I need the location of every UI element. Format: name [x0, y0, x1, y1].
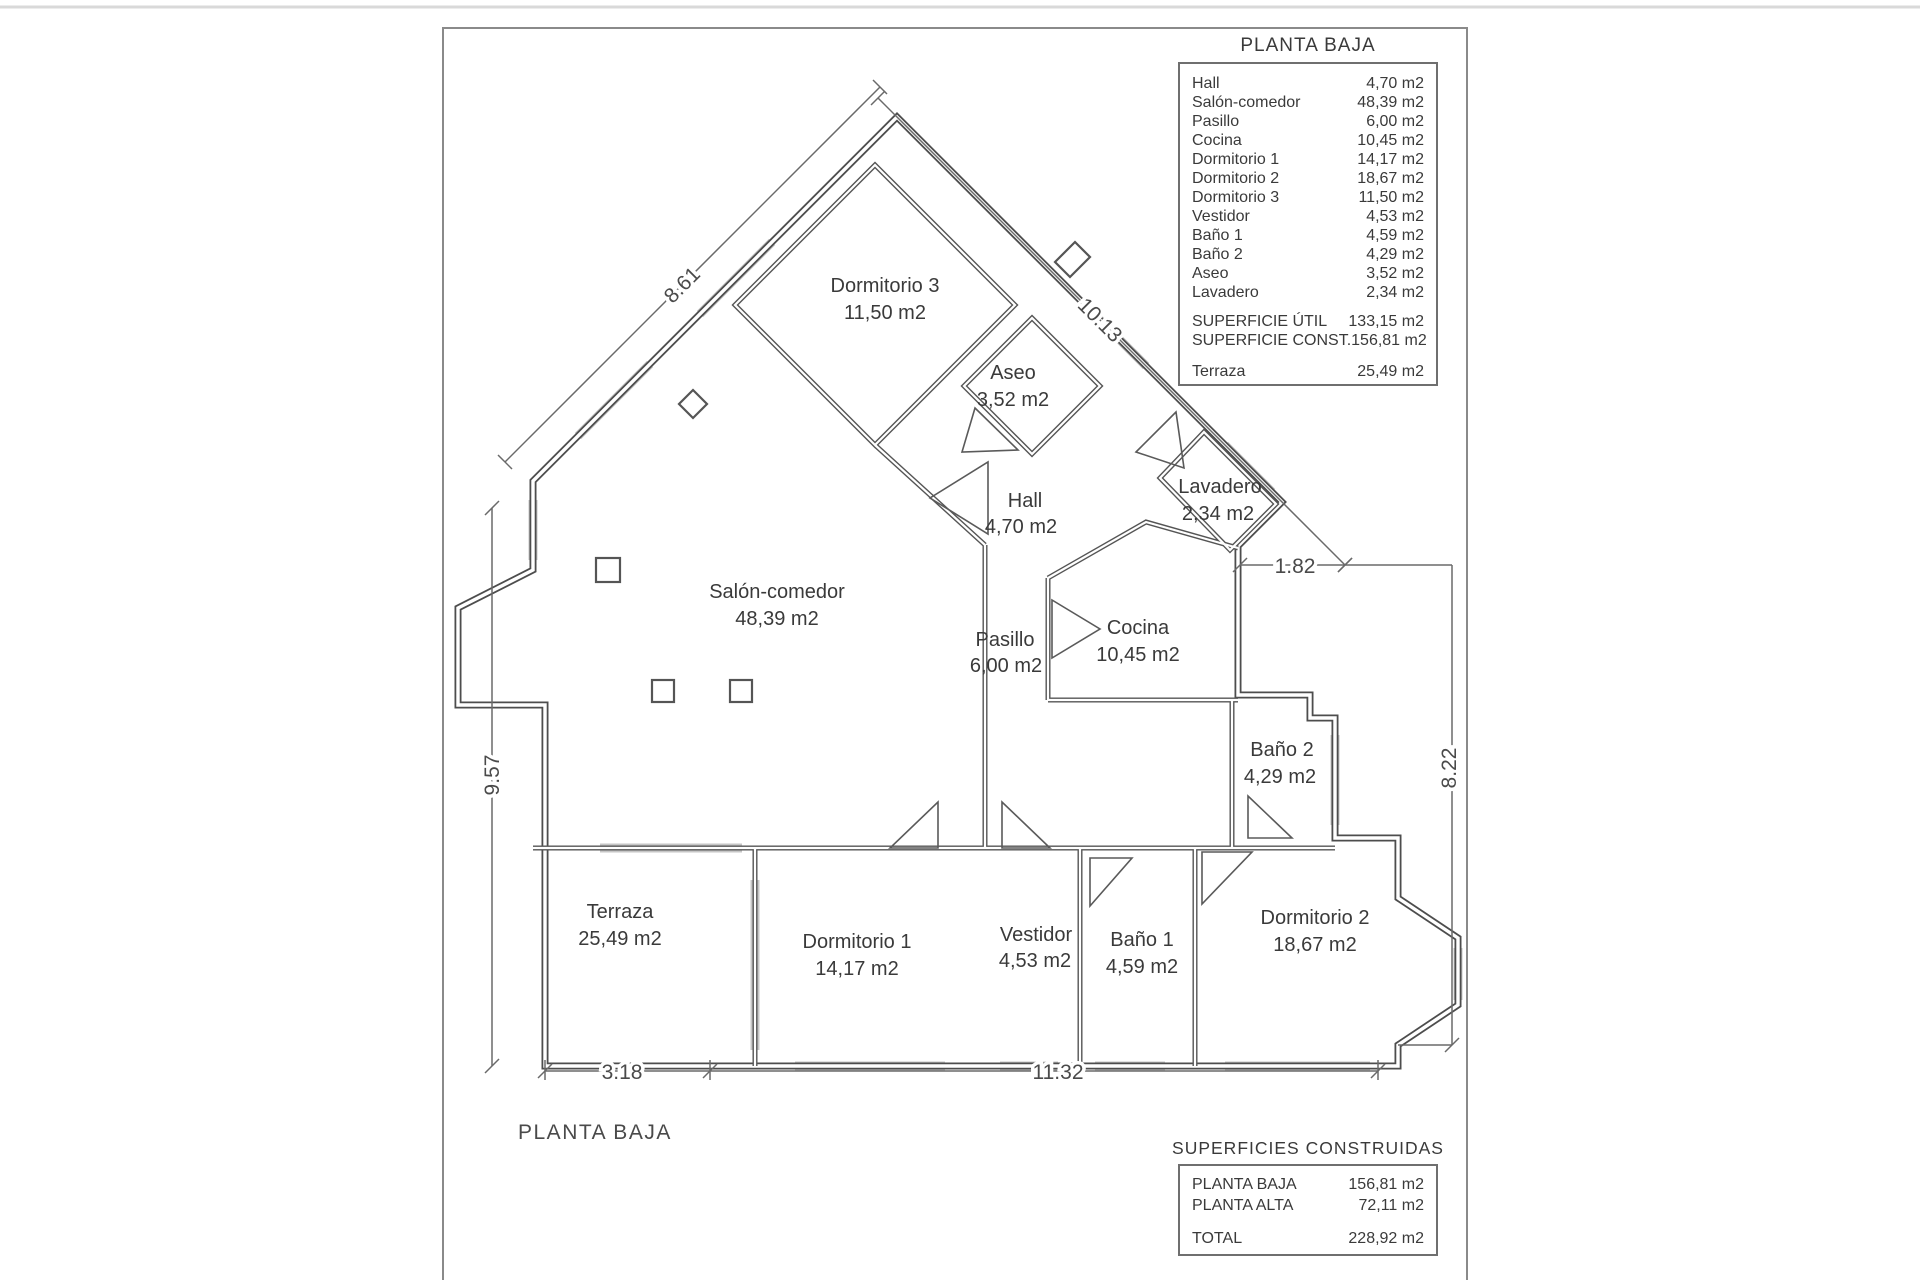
svg-text:Terraza: Terraza	[587, 901, 655, 923]
summary-row: PLANTA BAJA156,81 m2	[1192, 1174, 1424, 1195]
svg-text:4,53 m2: 4,53 m2	[999, 950, 1071, 972]
room-label-aseo: Aseo 3,52 m2	[977, 362, 1049, 411]
svg-text:Vestidor: Vestidor	[1000, 924, 1073, 946]
svg-text:14,17 m2: 14,17 m2	[815, 958, 898, 980]
room-label-terraza: Terraza 25,49 m2	[578, 901, 661, 950]
svg-text:Salón-comedor: Salón-comedor	[709, 581, 845, 603]
summary-title: SUPERFICIES CONSTRUIDAS	[1165, 1138, 1451, 1159]
room-label-dormitorio-2: Dormitorio 2 18,67 m2	[1261, 907, 1370, 956]
svg-text:4,70 m2: 4,70 m2	[985, 516, 1057, 538]
legend-row: Pasillo6,00 m2	[1192, 112, 1424, 131]
svg-text:Baño 1: Baño 1	[1110, 929, 1173, 951]
floor-plan-canvas: 8.61 10.13 9.57 1.82 8.22 3.18 11.32 Dor…	[0, 0, 1920, 1280]
room-label-pasillo: Pasillo 6,00 m2	[970, 629, 1042, 677]
dimension-11-32: 11.32	[1033, 1061, 1084, 1084]
svg-text:48,39 m2: 48,39 m2	[735, 608, 818, 630]
dimension-8-22: 8.22	[1438, 748, 1461, 789]
legend-row: Salón-comedor48,39 m2	[1192, 93, 1424, 112]
room-label-lavadero: Lavadero 2,34 m2	[1178, 476, 1261, 525]
svg-text:Dormitorio 2: Dormitorio 2	[1261, 907, 1370, 929]
svg-text:3,52 m2: 3,52 m2	[977, 389, 1049, 411]
legend-row: Dormitorio 218,67 m2	[1192, 169, 1424, 188]
svg-text:Hall: Hall	[1008, 490, 1042, 512]
dimension-9-57: 9.57	[481, 755, 504, 796]
dimension-1-82: 1.82	[1275, 555, 1316, 578]
plan-name-label: PLANTA BAJA	[518, 1121, 672, 1145]
svg-text:2,34 m2: 2,34 m2	[1182, 503, 1254, 525]
svg-text:Baño 2: Baño 2	[1250, 739, 1313, 761]
summary-row: PLANTA ALTA72,11 m2	[1192, 1195, 1424, 1216]
summary-total-row: TOTAL228,92 m2	[1192, 1228, 1424, 1249]
legend-row: Lavadero2,34 m2	[1192, 283, 1424, 302]
floor-plan-document: 8.61 10.13 9.57 1.82 8.22 3.18 11.32 Dor…	[0, 0, 1920, 1280]
legend-row: Dormitorio 311,50 m2	[1192, 188, 1424, 207]
svg-text:Cocina: Cocina	[1107, 617, 1170, 639]
summary-panel: PLANTA BAJA156,81 m2 PLANTA ALTA72,11 m2…	[1178, 1164, 1438, 1256]
legend-row: Cocina10,45 m2	[1192, 131, 1424, 150]
svg-text:10,45 m2: 10,45 m2	[1096, 644, 1179, 666]
legend-row: Dormitorio 114,17 m2	[1192, 150, 1424, 169]
legend-row: Baño 24,29 m2	[1192, 245, 1424, 264]
room-label-dormitorio-3: Dormitorio 3 11,50 m2	[831, 275, 940, 324]
room-label-bano-2: Baño 2 4,29 m2	[1244, 739, 1316, 788]
svg-text:Dormitorio 3: Dormitorio 3	[831, 275, 940, 297]
legend-total-util: SUPERFICIE ÚTIL133,15 m2	[1192, 312, 1424, 331]
room-label-dormitorio-1: Dormitorio 1 14,17 m2	[803, 931, 912, 980]
svg-text:Pasillo: Pasillo	[976, 629, 1035, 651]
svg-text:4,59 m2: 4,59 m2	[1106, 956, 1178, 978]
legend-row: Hall4,70 m2	[1192, 74, 1424, 93]
svg-text:Aseo: Aseo	[990, 362, 1036, 384]
room-label-salon-comedor: Salón-comedor 48,39 m2	[709, 581, 845, 630]
svg-text:Dormitorio 1: Dormitorio 1	[803, 931, 912, 953]
svg-text:4,29 m2: 4,29 m2	[1244, 766, 1316, 788]
svg-text:6,00 m2: 6,00 m2	[970, 655, 1042, 677]
legend-row: Vestidor4,53 m2	[1192, 207, 1424, 226]
legend-panel: Hall4,70 m2 Salón-comedor48,39 m2 Pasill…	[1178, 62, 1438, 386]
legend-total-const: SUPERFICIE CONST.156,81 m2	[1192, 331, 1424, 350]
svg-text:25,49 m2: 25,49 m2	[578, 928, 661, 950]
room-label-bano-1: Baño 1 4,59 m2	[1106, 929, 1178, 978]
legend-title: PLANTA BAJA	[1178, 35, 1438, 57]
svg-text:11,50 m2: 11,50 m2	[844, 302, 926, 324]
dimension-3-18: 3.18	[602, 1061, 643, 1084]
svg-text:Lavadero: Lavadero	[1178, 476, 1261, 498]
room-label-hall: Hall 4,70 m2	[985, 490, 1057, 538]
room-label-cocina: Cocina 10,45 m2	[1096, 617, 1179, 666]
legend-terraza-row: Terraza25,49 m2	[1192, 362, 1424, 381]
room-label-vestidor: Vestidor 4,53 m2	[999, 924, 1073, 972]
legend-row: Baño 14,59 m2	[1192, 226, 1424, 245]
svg-text:18,67 m2: 18,67 m2	[1273, 934, 1356, 956]
legend-row: Aseo3,52 m2	[1192, 264, 1424, 283]
